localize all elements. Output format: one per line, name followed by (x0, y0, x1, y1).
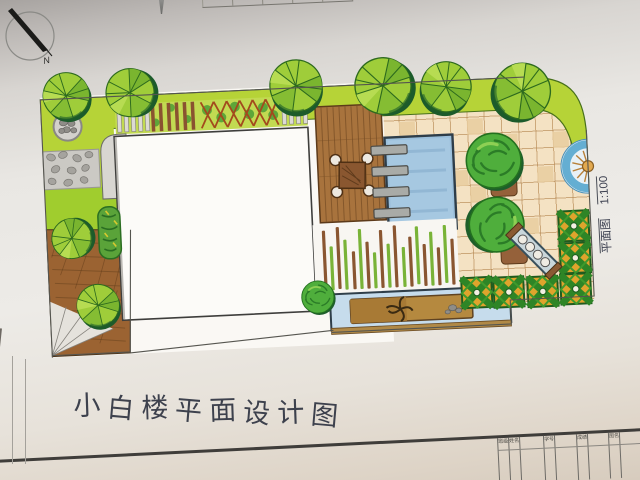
table-cell (323, 0, 353, 2)
title-char: 图 (309, 392, 346, 434)
table-cell (263, 0, 293, 4)
title-block-field (620, 431, 640, 478)
pen-tip (159, 0, 164, 14)
stepping-stone-path (43, 149, 101, 190)
sheet-edge (0, 328, 2, 480)
scale-value: 1:100 (596, 175, 612, 205)
frame-line (12, 356, 13, 464)
hedge (97, 206, 121, 259)
title-char: 设 (242, 390, 279, 432)
title-char: 楼 (141, 385, 176, 425)
photo-of-plan-drawing: N (0, 0, 640, 480)
frame-line (25, 359, 26, 464)
table-cell (233, 0, 263, 6)
title-char: 平 (174, 388, 211, 430)
table-cell (203, 0, 233, 7)
top-sheet-table-sliver (202, 0, 353, 8)
title-char: 面 (209, 388, 244, 428)
plan-canvas (38, 68, 599, 383)
north-label: N (42, 55, 51, 66)
building-footprint (114, 127, 316, 320)
title-block: 班级 姓名 学号 成绩 图名 (497, 428, 640, 480)
timber-platform (315, 104, 386, 223)
wood-sign (350, 294, 473, 324)
drawing-title: 小白楼平面设计图 (73, 384, 384, 434)
scale-note: 平面图 1:100 (594, 143, 616, 254)
title-char: 白 (106, 385, 143, 427)
table-cell (293, 0, 323, 3)
bamboo-garden (312, 218, 459, 295)
scale-drawing-label: 平面图 (598, 218, 615, 253)
title-char: 计 (277, 390, 312, 430)
title-char: 小 (73, 383, 108, 423)
title-block-field (520, 436, 546, 480)
title-block-field (555, 434, 579, 480)
title-block-field (588, 433, 611, 480)
north-compass: N (2, 3, 64, 69)
